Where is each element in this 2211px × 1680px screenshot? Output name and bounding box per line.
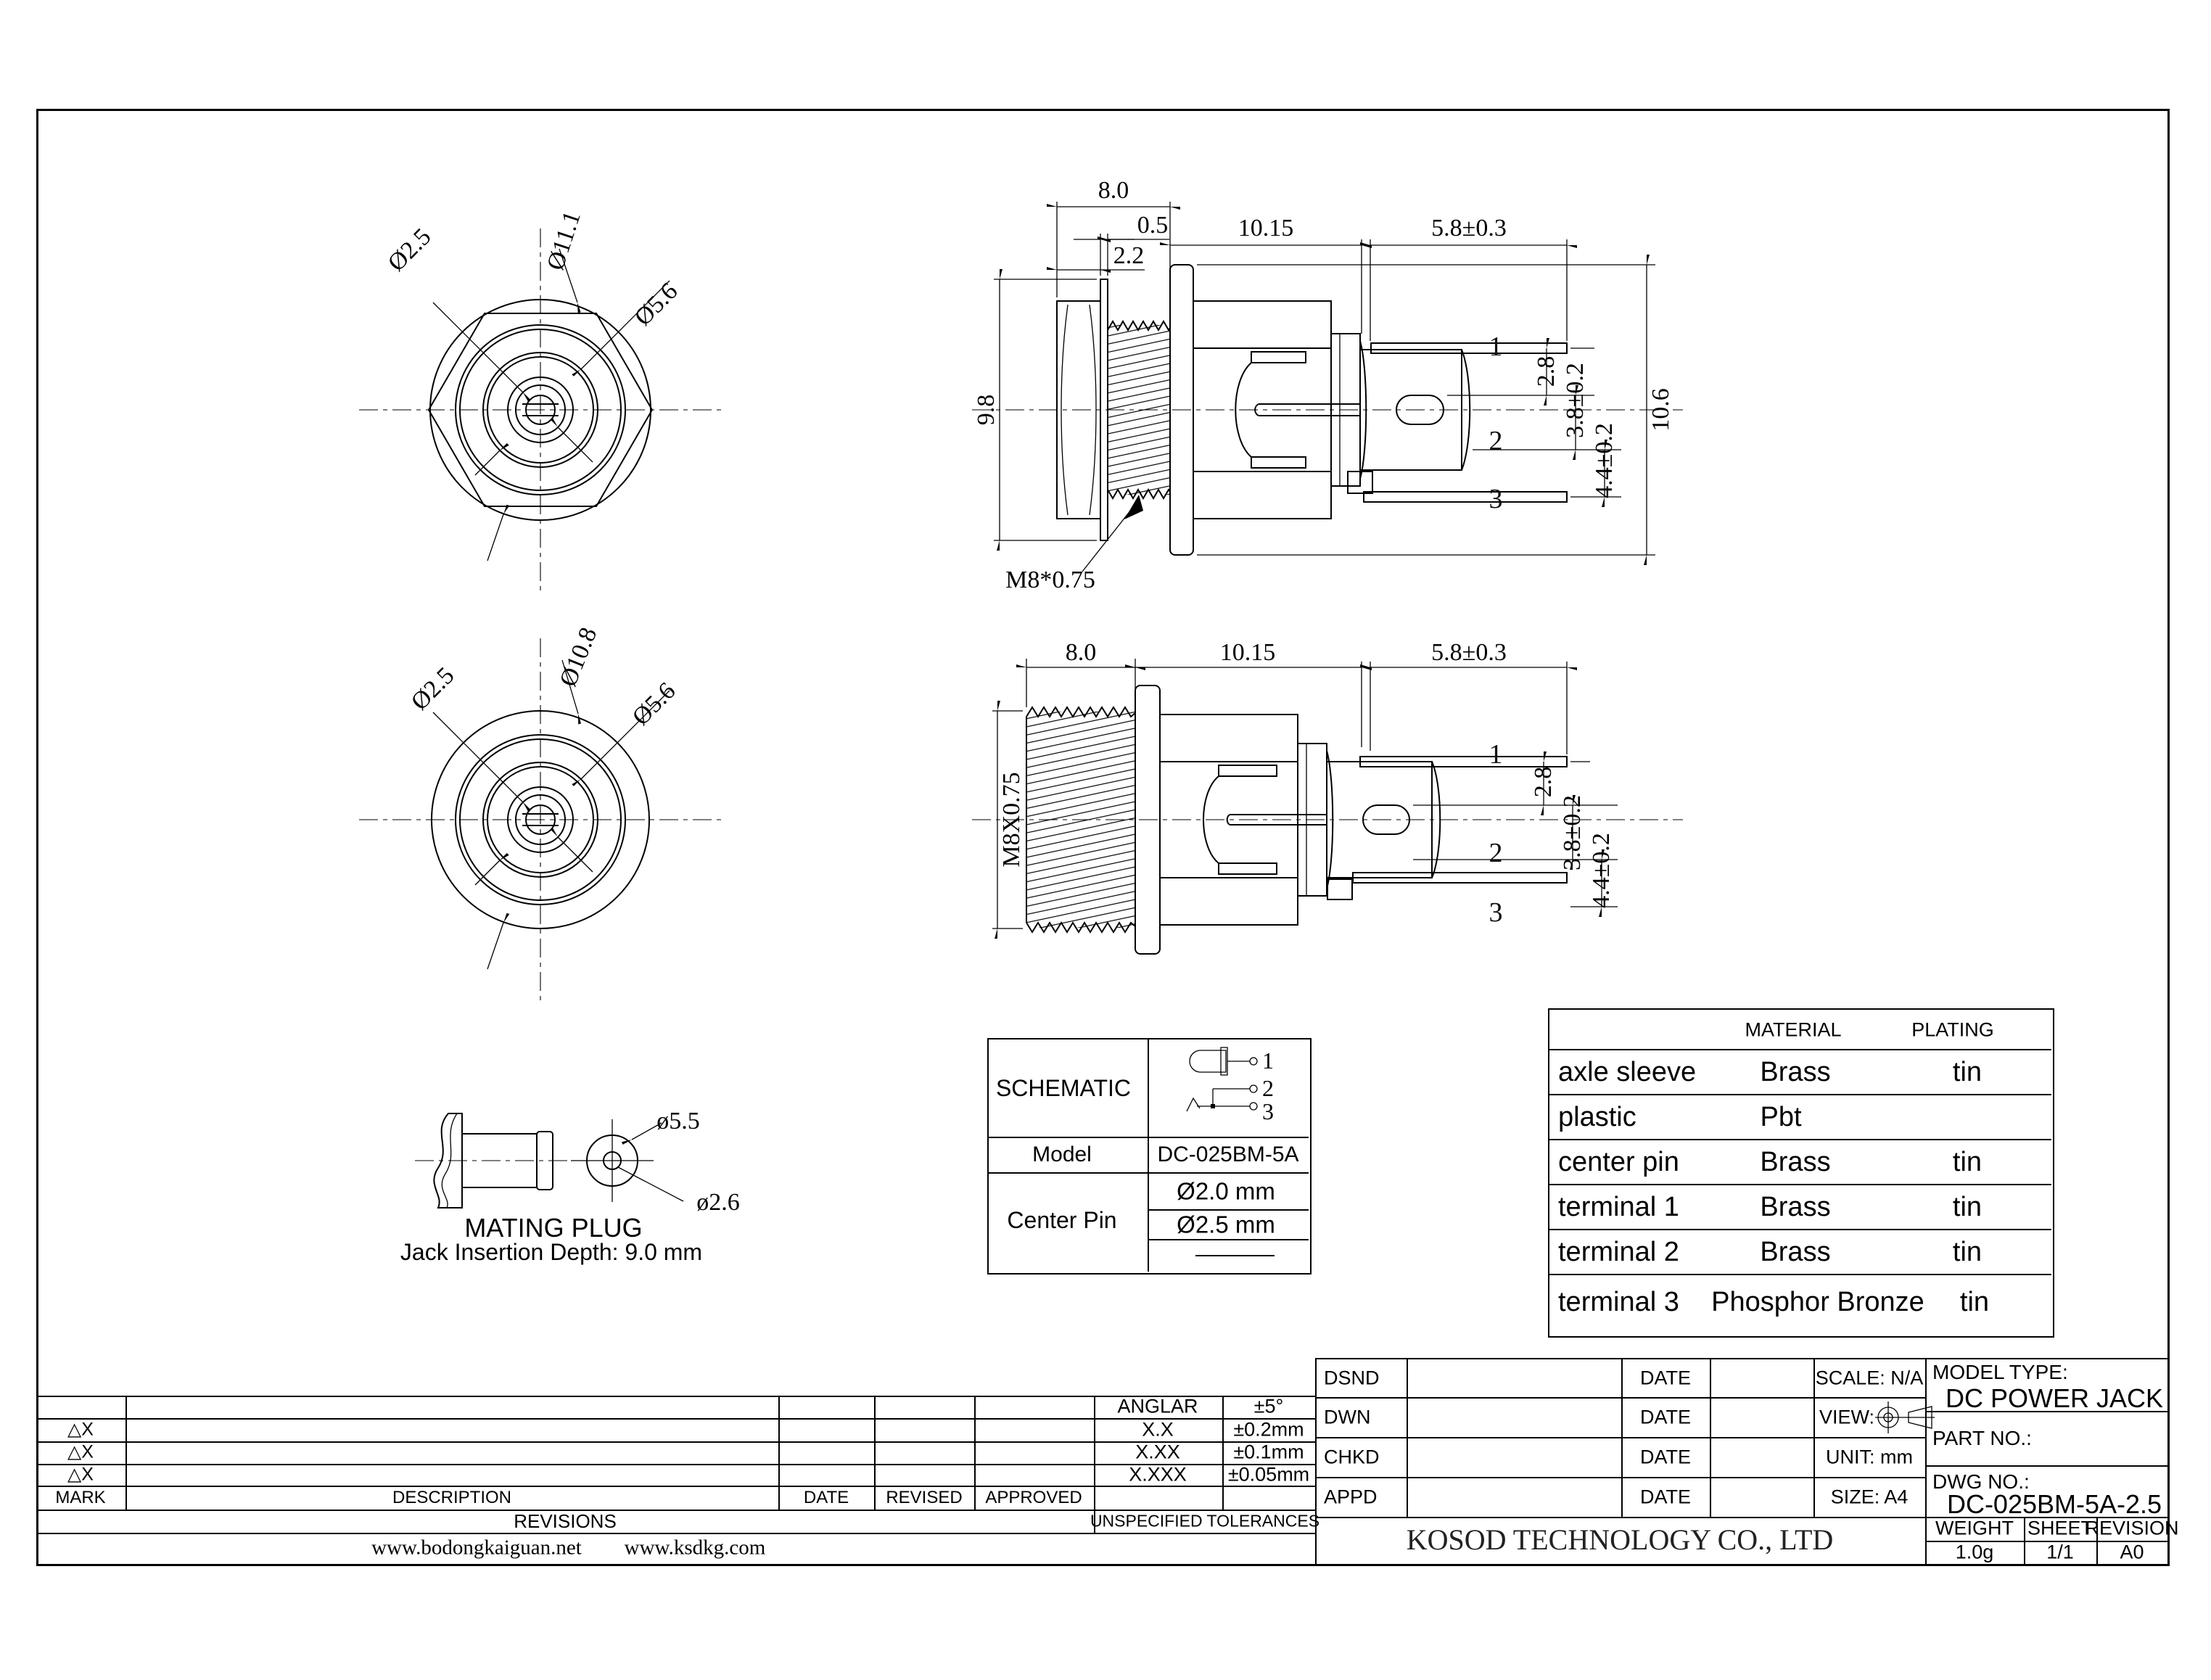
dim-plug-d5.5: ø5.5 — [656, 1109, 700, 1134]
dwn-label: DWN — [1324, 1408, 1370, 1428]
tolerance-anglar-label: ANGLAR — [1117, 1397, 1198, 1417]
dim-side1-4.4: 4.4±0.2 — [1592, 423, 1617, 498]
materials-row-material: Brass — [1760, 1193, 1830, 1221]
model-label: Model — [1032, 1144, 1092, 1166]
schematic-pin3-label: 3 — [1262, 1100, 1274, 1123]
schematic-pin2-label: 2 — [1262, 1076, 1274, 1100]
materials-row-plating: tin — [1953, 1058, 1982, 1086]
materials-row-material: Brass — [1760, 1238, 1830, 1266]
pin2-label-side2: 2 — [1489, 839, 1503, 867]
pin2-label-side1: 2 — [1489, 427, 1503, 455]
unit-value: UNIT: mm — [1826, 1448, 1913, 1467]
dim-side1-10.6: 10.6 — [1649, 388, 1673, 432]
approved-header: APPROVED — [985, 1489, 1082, 1507]
sheet-label: SHEET — [2027, 1519, 2093, 1539]
revision-mark-2: △X — [67, 1444, 94, 1462]
schematic-symbol — [1161, 1045, 1306, 1124]
center-pin-d2: Ø2.5 mm — [1177, 1213, 1275, 1237]
materials-row-part: center pin — [1558, 1148, 1679, 1176]
dwn-date-label: DATE — [1640, 1408, 1691, 1428]
materials-row-part: axle sleeve — [1558, 1058, 1696, 1086]
tolerance-xxx-label: X.XX — [1135, 1443, 1180, 1462]
chkd-label: CHKD — [1324, 1448, 1380, 1467]
thread-spec-side2: M8X0.75 — [1000, 772, 1024, 867]
dim-side2-5.8: 5.8±0.3 — [1431, 641, 1507, 665]
dim-side2-4.4: 4.4±0.2 — [1589, 833, 1614, 908]
materials-row-part: terminal 1 — [1558, 1193, 1679, 1221]
sheet-value: 1/1 — [2046, 1543, 2074, 1562]
tolerance-xxx-value: ±0.1mm — [1233, 1443, 1304, 1462]
dim-side1-2.8: 2.8 — [1534, 356, 1559, 387]
view-label: VIEW: — [1819, 1408, 1874, 1428]
jack-insertion-depth-note: Jack Insertion Depth: 9.0 mm — [400, 1240, 702, 1264]
company-name: KOSOD TECHNOLOGY CO., LTD — [1407, 1525, 1834, 1555]
tolerance-xx-value: ±0.2mm — [1233, 1420, 1304, 1440]
part-no-label: PART NO.: — [1932, 1428, 2032, 1449]
dsnd-label: DSND — [1324, 1369, 1380, 1388]
dim-plug-d2.6: ø2.6 — [696, 1190, 740, 1215]
center-pin-blank-option-line — [1195, 1255, 1275, 1256]
materials-row-part: plastic — [1558, 1103, 1636, 1131]
website-2: www.ksdkg.com — [625, 1538, 766, 1559]
materials-row-plating: tin — [1953, 1238, 1982, 1266]
schematic-title: SCHEMATIC — [996, 1076, 1131, 1100]
date-column-header: DATE — [804, 1489, 849, 1507]
schematic-pin1-label: 1 — [1262, 1049, 1274, 1072]
unspecified-tolerances-title: UNSPECIFIED TOLERANCES — [1090, 1513, 1319, 1530]
tolerance-xx-label: X.X — [1142, 1420, 1174, 1440]
dim-side1-10.15: 10.15 — [1238, 216, 1294, 241]
mating-plug-title: MATING PLUG — [464, 1215, 642, 1241]
appd-date-label: DATE — [1640, 1488, 1691, 1507]
pin3-label-side1: 3 — [1489, 485, 1503, 513]
tolerance-xxxx-value: ±0.05mm — [1228, 1465, 1309, 1485]
pin1-label-side1: 1 — [1489, 333, 1503, 361]
materials-row-material: Pbt — [1760, 1103, 1801, 1131]
thread-spec-side1: M8*0.75 — [1005, 568, 1095, 593]
dim-side2-2.8: 2.8 — [1531, 767, 1556, 798]
materials-row-material: Brass — [1760, 1058, 1830, 1086]
dim-side1-5.8: 5.8±0.3 — [1431, 216, 1507, 241]
weight-label: WEIGHT — [1935, 1519, 2014, 1539]
description-header: DESCRIPTION — [392, 1489, 511, 1507]
materials-row-part: terminal 3 — [1558, 1288, 1679, 1316]
model-value: DC-025BM-5A — [1157, 1144, 1298, 1166]
dim-side2-10.15: 10.15 — [1220, 641, 1276, 665]
revision-value: A0 — [2120, 1543, 2144, 1562]
center-pin-label: Center Pin — [1007, 1208, 1116, 1232]
tolerance-anglar-value: ±5° — [1254, 1397, 1284, 1417]
dwg-no-value: DC-025BM-5A-2.5 — [1947, 1491, 2162, 1518]
scale-value: SCALE: N/A — [1816, 1369, 1924, 1388]
materials-row-plating: tin — [1960, 1288, 1989, 1316]
revisions-title: REVISIONS — [514, 1512, 617, 1531]
dim-side1-2.2: 2.2 — [1113, 244, 1145, 268]
dim-side1-8.0: 8.0 — [1098, 178, 1129, 203]
dim-side1-9.8: 9.8 — [974, 395, 999, 426]
materials-row-plating: tin — [1953, 1148, 1982, 1176]
materials-row-part: terminal 2 — [1558, 1238, 1679, 1266]
dim-side1-0.5: 0.5 — [1137, 213, 1169, 238]
pin3-label-side2: 3 — [1489, 899, 1503, 926]
revision-mark-3: △X — [67, 1466, 94, 1484]
website-1: www.bodongkaiguan.net — [371, 1538, 582, 1559]
materials-row-plating: tin — [1953, 1193, 1982, 1221]
dim-side2-3.8: 3.8±0.2 — [1560, 795, 1585, 870]
dim-side2-8.0: 8.0 — [1066, 641, 1097, 665]
dsnd-date-label: DATE — [1640, 1369, 1691, 1388]
model-type-value: DC POWER JACK — [1946, 1385, 2163, 1412]
revision-mark-1: △X — [67, 1421, 94, 1439]
weight-value: 1.0g — [1956, 1543, 1994, 1562]
dim-side1-3.8: 3.8±0.2 — [1563, 363, 1588, 438]
hex-front-view-drawing — [352, 221, 729, 598]
first-angle-projection-icon — [1874, 1399, 1939, 1436]
center-pin-d1: Ø2.0 mm — [1177, 1179, 1275, 1203]
drawing-sheet: Ø2.5 Ø11.1 Ø5.6 — [0, 0, 2211, 1680]
materials-header-material: MATERIAL — [1745, 1021, 1841, 1040]
revision-label: REVISION — [2085, 1519, 2178, 1539]
materials-header-plating: PLATING — [1911, 1021, 1994, 1040]
tolerance-xxxx-label: X.XXX — [1129, 1465, 1187, 1485]
materials-row-material: Brass — [1760, 1148, 1830, 1176]
appd-label: APPD — [1324, 1488, 1378, 1507]
size-value: SIZE: A4 — [1831, 1488, 1909, 1507]
pin1-label-side2: 1 — [1489, 741, 1503, 768]
materials-row-material: Phosphor Bronze — [1711, 1288, 1924, 1316]
model-type-label: MODEL TYPE: — [1932, 1362, 2068, 1383]
mark-header: MARK — [55, 1489, 105, 1507]
revised-header: REVISED — [886, 1489, 962, 1507]
chkd-date-label: DATE — [1640, 1448, 1691, 1467]
